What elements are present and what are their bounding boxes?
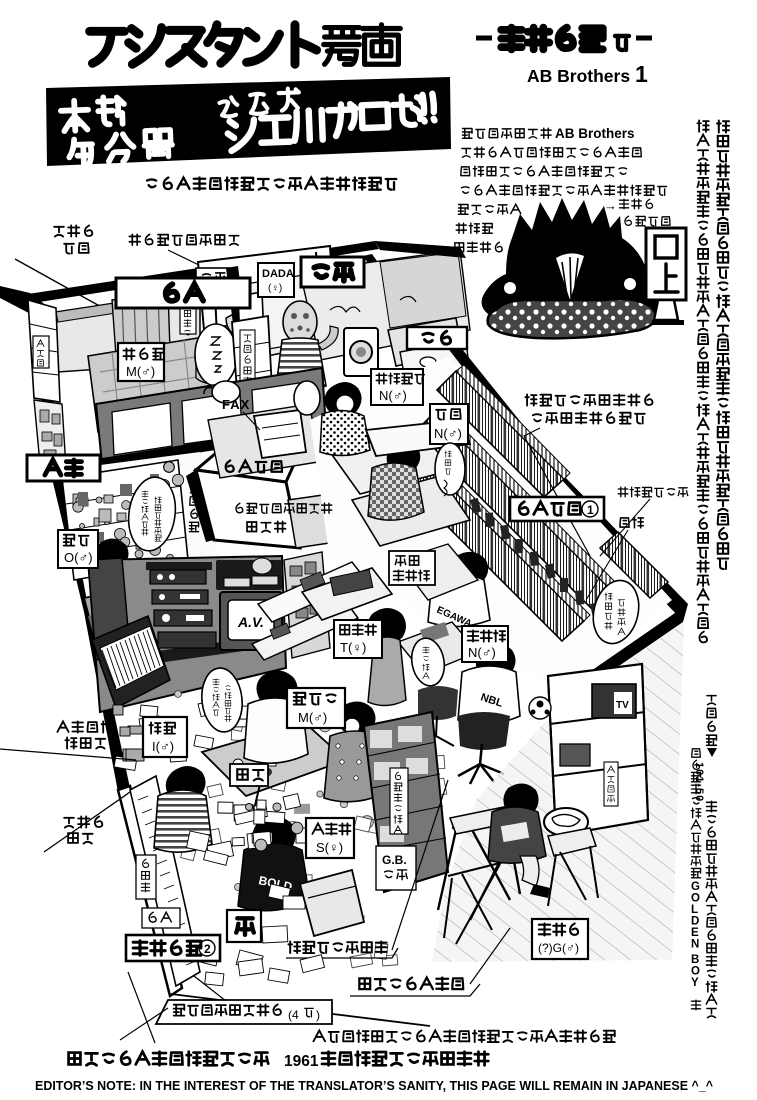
svg-text:GOLDEN: GOLDEN — [691, 881, 700, 951]
svg-text:T(♀): T(♀) — [340, 640, 366, 655]
svg-text:BOY: BOY — [691, 954, 700, 989]
svg-text:I(♂): I(♂) — [152, 739, 174, 754]
svg-text:TV: TV — [616, 700, 629, 711]
svg-text:(?)G(♂): (?)G(♂) — [538, 941, 579, 955]
svg-text:(4: (4 — [288, 1008, 299, 1022]
svg-text:FAX: FAX — [222, 397, 250, 412]
svg-text:S(♀): S(♀) — [316, 840, 343, 855]
svg-text:): ) — [316, 1008, 320, 1022]
svg-text:AB Brothers: AB Brothers — [555, 126, 635, 141]
svg-text:→: → — [604, 198, 617, 213]
svg-text:2: 2 — [204, 942, 211, 956]
svg-text:M(♂): M(♂) — [298, 710, 327, 725]
svg-text:DADA: DADA — [262, 268, 294, 280]
svg-text:O(♂): O(♂) — [64, 550, 93, 565]
svg-text:M(♂): M(♂) — [126, 364, 155, 379]
svg-text:N(♂): N(♂) — [434, 426, 462, 441]
svg-text:1: 1 — [587, 503, 594, 517]
svg-text:N(♂): N(♂) — [379, 388, 407, 403]
svg-text:EDITOR’S NOTE: IN THE INTEREST: EDITOR’S NOTE: IN THE INTEREST OF THE TR… — [35, 1079, 714, 1093]
svg-text:G.B.: G.B. — [382, 853, 407, 867]
svg-text:A.V.: A.V. — [237, 614, 264, 630]
svg-text:N(♂): N(♂) — [468, 645, 496, 660]
svg-text:(♀): (♀) — [268, 283, 282, 294]
svg-text:1961: 1961 — [284, 1053, 319, 1070]
